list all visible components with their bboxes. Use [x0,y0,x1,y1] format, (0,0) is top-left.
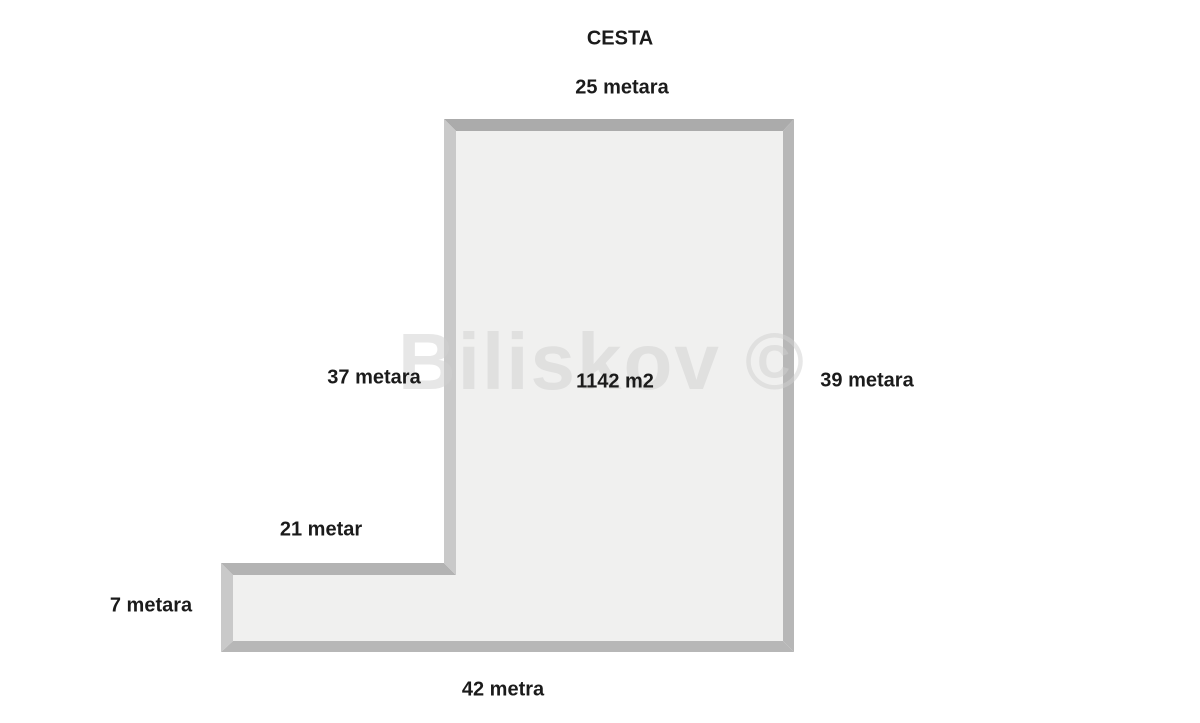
dimension-top: 25 metara [575,77,668,100]
dimension-left-lower: 7 metara [110,595,192,618]
parcel-border-left-lower [221,563,233,652]
parcel-border-bottom [221,641,794,652]
parcel-border-right [783,119,794,652]
dimension-step: 21 metar [280,519,362,542]
dimension-left-upper: 37 metara [327,367,420,390]
parcel-border-left-upper [444,119,456,575]
dimension-bottom: 42 metra [462,679,544,702]
parcel-border-step [221,563,456,575]
area-label: 1142 m2 [576,371,654,394]
dimension-right: 39 metara [820,370,913,393]
parcel-plan-diagram: Biliskov © CESTA 25 metara 37 metara 114… [0,0,1200,723]
road-label: CESTA [587,28,653,51]
parcel-border-top [444,119,794,131]
